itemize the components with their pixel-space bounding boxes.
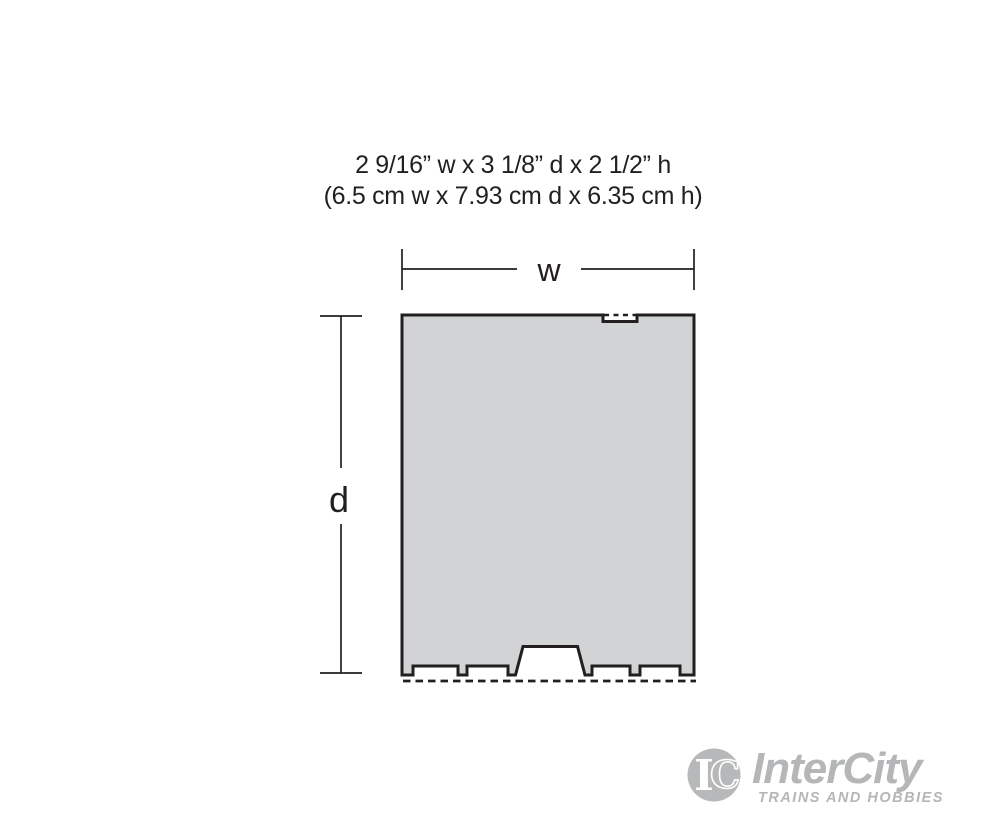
brand-tagline: TRAINS AND HOBBIES xyxy=(758,790,944,806)
intercity-logo-icon: C I xyxy=(686,747,742,803)
product-dimension-figure: 2 9/16” w x 3 1/8” d x 2 1/2” h (6.5 cm … xyxy=(0,0,1000,833)
logo-monogram-i: I xyxy=(694,751,714,800)
footprint-diagram: w d xyxy=(0,0,1000,833)
brand-logo: C I InterCity TRAINS AND HOBBIES xyxy=(686,744,996,824)
depth-label: d xyxy=(329,479,349,520)
logo-monogram-c: C xyxy=(710,752,740,797)
width-label: w xyxy=(536,252,561,288)
brand-name: InterCity xyxy=(752,744,921,794)
footprint-shape xyxy=(402,315,694,675)
